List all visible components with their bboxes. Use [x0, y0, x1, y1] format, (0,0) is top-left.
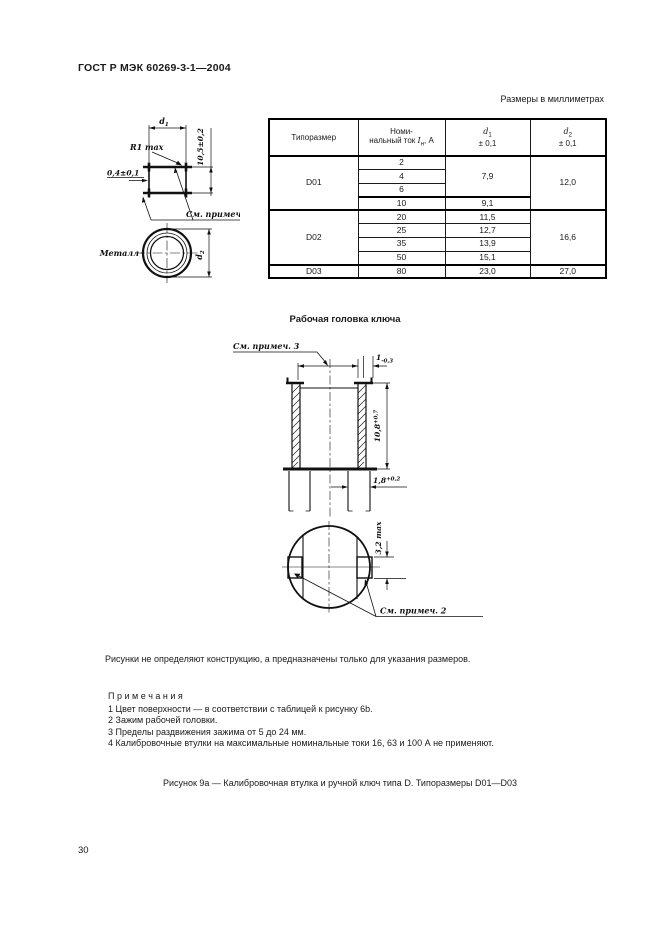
sleeve-walls [149, 167, 186, 193]
note2-reference: См. примеч. 2 [380, 606, 447, 616]
table-row: D03 80 23,0 27,0 [269, 265, 606, 279]
note-item: 4 Калибровочные втулки на максимальные н… [108, 738, 628, 749]
page-number: 30 [78, 845, 89, 856]
col-header-size: Типоразмер [269, 119, 358, 156]
radius-label: R1 max [129, 142, 164, 152]
left-clamp-jaw [288, 557, 302, 578]
note-item: 3 Пределы раздвижения зажима от 5 до 24 … [108, 727, 628, 738]
left-wall-hatching [292, 385, 300, 468]
units-note: Размеры в миллиметрах [404, 94, 604, 104]
height-dimension-label: 10,5±0,2 [196, 128, 205, 166]
dimension-table: Типоразмер Номи- нальный ток Iн, А d1 ± … [268, 118, 607, 279]
d1-dimension-label: d1 [159, 116, 168, 128]
standard-number-header: ГОСТ Р МЭК 60269-3-1—2004 [78, 62, 231, 74]
drawing-section-title: Рабочая головка ключа [240, 314, 450, 325]
leg-wall-dimension-label: 1,8+0,2 [373, 476, 400, 485]
notes-heading: П р и м е ч а н и я [108, 691, 183, 701]
figure-disclaimer: Рисунки не определяют конструкцию, а пре… [105, 654, 625, 664]
jaw-height-dimension-label: 3,2 max [374, 521, 383, 554]
note-item: 2 Зажим рабочей головки. [108, 715, 628, 726]
note3-reference: См. примеч. 3 [233, 341, 300, 351]
head-height-dimension-label: 10,8+0,7 [373, 410, 382, 443]
top-wall-dimension-label: 1-0,3 [376, 353, 393, 365]
col-header-d2: d2 ± 0,1 [530, 119, 606, 156]
right-wall-hatching [358, 385, 366, 468]
notes-list: 1 Цвет поверхности — в соответствии с та… [108, 704, 628, 749]
document-page: ГОСТ Р МЭК 60269-3-1—2004 Размеры в милл… [0, 0, 661, 936]
metal-label: Металл [99, 248, 139, 258]
wrench-head-drawing: См. примеч. 3 1-0,3 10,8+0,7 1,8+0,2 [230, 335, 490, 640]
table-row: D02 20 11,5 16,6 [269, 210, 606, 224]
calibration-sleeve-drawing: d1 10,5±0,2 R1 max 0,4±0,1 См. примеч. 1… [95, 105, 240, 295]
note1-reference: См. примеч. 1 [186, 209, 240, 219]
d2-dimension-label: d2 [194, 250, 206, 260]
wall-thickness-label: 0,4±0,1 [107, 169, 139, 178]
col-header-d1: d1 ± 0,1 [445, 119, 530, 156]
col-header-current: Номи- нальный ток Iн, А [358, 119, 445, 156]
head-legs [289, 471, 370, 511]
figure-caption: Рисунок 9а — Калибровочная втулка и ручн… [30, 778, 650, 788]
table-row: D01 2 7,9 12,0 [269, 156, 606, 170]
sleeve-caps [143, 167, 192, 193]
note-item: 1 Цвет поверхности — в соответствии с та… [108, 704, 628, 715]
